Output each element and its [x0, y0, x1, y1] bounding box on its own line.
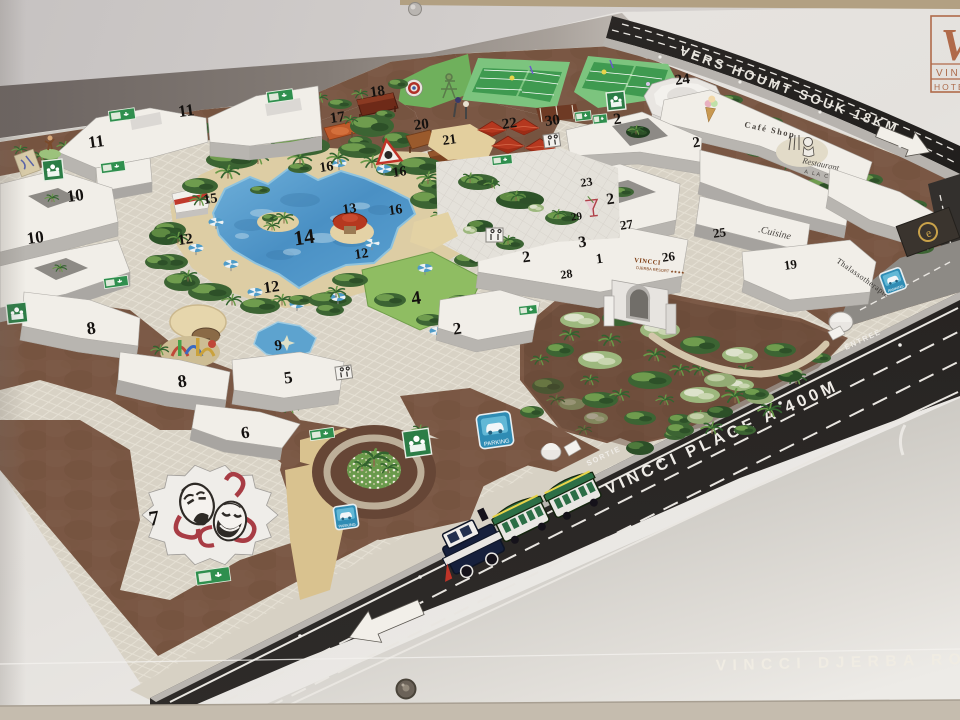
svg-text:16: 16	[319, 159, 335, 176]
svg-text:V: V	[941, 19, 960, 70]
svg-text:10: 10	[25, 227, 44, 248]
svg-text:27: 27	[619, 216, 634, 233]
svg-text:26: 26	[661, 248, 676, 265]
svg-text:12: 12	[354, 246, 370, 263]
svg-text:12: 12	[177, 231, 194, 249]
svg-text:24: 24	[674, 71, 692, 89]
svg-text:17: 17	[329, 109, 347, 127]
svg-text:30: 30	[544, 112, 561, 130]
svg-text:VIN: VIN	[936, 68, 960, 79]
svg-text:11: 11	[177, 100, 196, 121]
svg-text:18: 18	[369, 83, 386, 101]
svg-text:21: 21	[442, 132, 458, 149]
svg-text:28: 28	[560, 266, 574, 282]
svg-text:23: 23	[580, 174, 594, 190]
svg-text:HOTE: HOTE	[934, 82, 960, 92]
svg-text:20: 20	[413, 116, 430, 134]
svg-text:29: 29	[570, 210, 583, 223]
svg-text:16: 16	[392, 164, 408, 181]
svg-text:22: 22	[501, 115, 518, 133]
svg-text:16: 16	[388, 202, 404, 219]
svg-text:10: 10	[65, 185, 84, 206]
svg-text:25: 25	[712, 224, 727, 241]
svg-text:15: 15	[203, 191, 219, 208]
svg-text:13: 13	[342, 201, 358, 218]
svg-text:12: 12	[262, 278, 280, 297]
svg-text:19: 19	[783, 256, 798, 273]
svg-text:11: 11	[87, 131, 106, 152]
svg-text:14: 14	[292, 224, 317, 251]
